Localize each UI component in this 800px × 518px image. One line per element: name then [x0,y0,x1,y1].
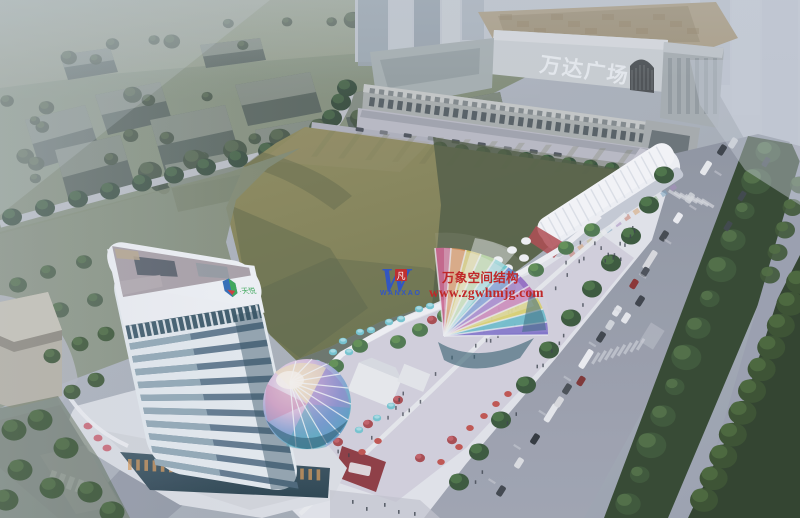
svg-text:www.zgwhmjg.com: www.zgwhmjg.com [429,285,544,300]
svg-text:WANXAO: WANXAO [380,290,422,297]
svg-text:凡: 凡 [397,271,406,281]
svg-text:万象空间结构: 万象空间结构 [441,270,519,285]
